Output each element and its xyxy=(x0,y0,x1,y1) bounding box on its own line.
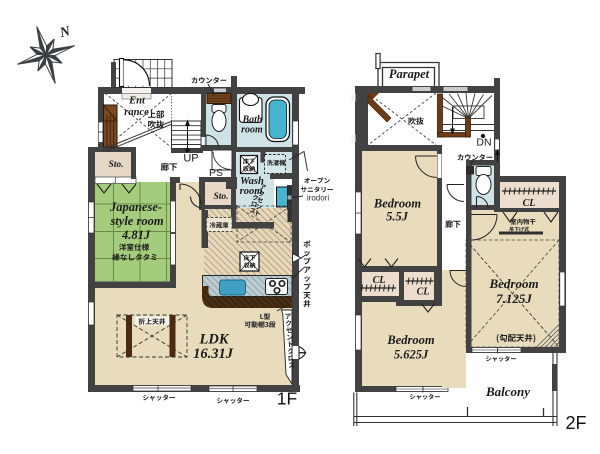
svg-text:Ent: Ent xyxy=(128,96,146,107)
svg-text:CL: CL xyxy=(523,198,536,209)
svg-text:room: room xyxy=(240,186,263,197)
svg-text:irodori: irodori xyxy=(307,194,329,203)
svg-text:CL: CL xyxy=(373,275,386,286)
svg-text:UP: UP xyxy=(183,153,198,165)
svg-text:7.125J: 7.125J xyxy=(496,291,532,306)
svg-text:rance: rance xyxy=(124,107,149,118)
svg-text:PS: PS xyxy=(209,167,223,179)
svg-text:Balcony: Balcony xyxy=(485,384,530,399)
svg-text:Japanese-: Japanese- xyxy=(109,200,162,214)
svg-text:4.81J: 4.81J xyxy=(121,228,151,242)
svg-text:Sto.: Sto. xyxy=(108,160,123,170)
svg-text:Sto.: Sto. xyxy=(213,192,228,202)
svg-text:2F: 2F xyxy=(565,413,586,433)
svg-text:1F: 1F xyxy=(277,389,297,409)
svg-text:Bedroom: Bedroom xyxy=(373,197,422,211)
svg-text:Parapet: Parapet xyxy=(389,67,430,81)
svg-text:5.625J: 5.625J xyxy=(394,348,429,362)
svg-text:style room: style room xyxy=(109,214,163,228)
svg-text:CL: CL xyxy=(417,287,430,298)
svg-text:5.5J: 5.5J xyxy=(386,210,409,224)
svg-text:DN: DN xyxy=(476,137,491,149)
svg-text:Bedroom: Bedroom xyxy=(488,276,538,291)
svg-text:room: room xyxy=(241,125,263,136)
svg-text:16.31J: 16.31J xyxy=(193,346,234,362)
svg-text:Bedroom: Bedroom xyxy=(386,333,435,347)
